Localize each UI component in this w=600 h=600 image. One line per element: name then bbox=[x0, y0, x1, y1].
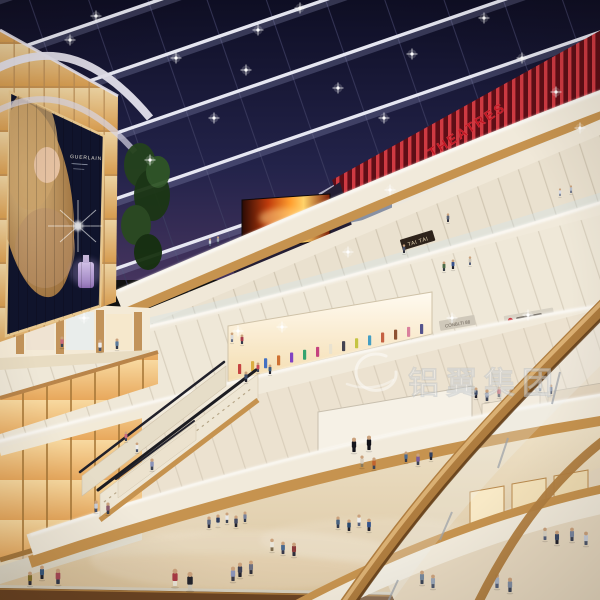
mall-atrium-rendering: THEATRES TAI TAI CONB bbox=[0, 0, 600, 600]
scene-canvas: THEATRES TAI TAI CONB bbox=[0, 0, 600, 600]
vignette bbox=[0, 0, 600, 600]
